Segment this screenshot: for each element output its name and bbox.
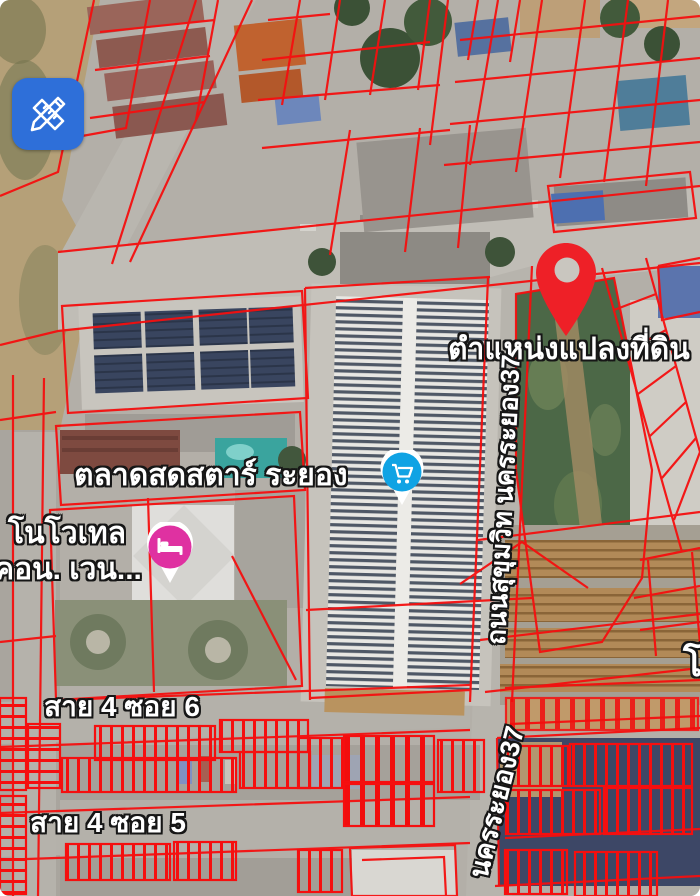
ruler-pencil-icon: [25, 91, 71, 137]
street-label-soi-5: สาย 4 ซอย 5: [30, 808, 186, 837]
hotel-label-line1: โนโวเทล: [8, 518, 126, 550]
satellite-imagery: [0, 0, 700, 896]
market-label: ตลาดสดสตาร์ ระยอง: [74, 460, 348, 492]
street-label-soi-6: สาย 4 ซอย 6: [44, 692, 200, 721]
map-canvas[interactable]: ตำแหน่งแปลงที่ดิน ตลาดสดสตาร์ ระยอง โนโว…: [0, 0, 700, 896]
parcel-location-label: ตำแหน่งแปลงที่ดิน: [448, 334, 690, 366]
map-pin-icon[interactable]: [535, 242, 597, 338]
shopping-cart-icon[interactable]: [379, 450, 425, 506]
hotel-label-line2: คอน. เวน...: [0, 554, 142, 586]
bed-icon[interactable]: [144, 522, 196, 584]
edit-parcel-button[interactable]: [12, 78, 84, 150]
edge-partial-label: โ: [683, 645, 700, 683]
